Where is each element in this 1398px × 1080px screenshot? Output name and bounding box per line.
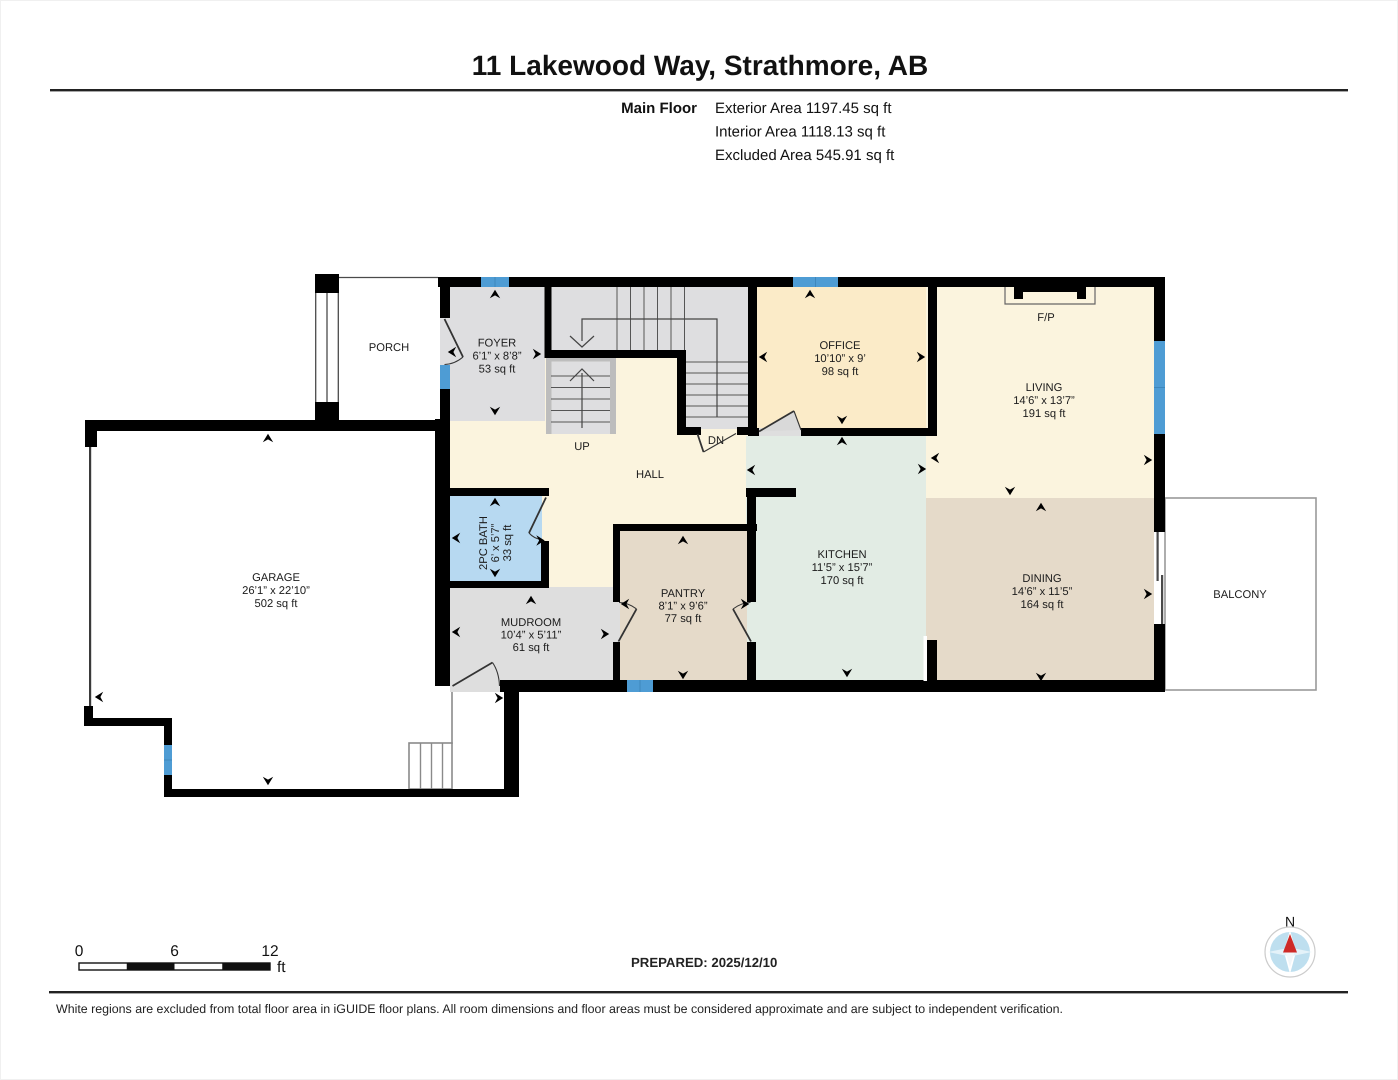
svg-text:11’5” x 15’7”: 11’5” x 15’7” xyxy=(812,562,873,574)
svg-text:164 sq ft: 164 sq ft xyxy=(1021,599,1065,611)
svg-text:10’10” x 9’: 10’10” x 9’ xyxy=(814,353,866,365)
svg-text:N: N xyxy=(1285,914,1295,930)
svg-text:LIVING: LIVING xyxy=(1026,382,1063,394)
svg-text:Exterior Area 1197.45 sq ft: Exterior Area 1197.45 sq ft xyxy=(715,100,892,117)
svg-text:HALL: HALL xyxy=(636,469,664,481)
svg-text:502 sq ft: 502 sq ft xyxy=(255,598,299,610)
svg-text:98 sq ft: 98 sq ft xyxy=(822,366,860,378)
svg-text:6’ x 5’7”: 6’ x 5’7” xyxy=(490,523,502,562)
svg-text:10’4” x 5’11”: 10’4” x 5’11” xyxy=(501,630,562,642)
svg-text:26’1” x 22’10”: 26’1” x 22’10” xyxy=(242,585,310,597)
svg-text:61 sq ft: 61 sq ft xyxy=(513,642,551,654)
svg-text:KITCHEN: KITCHEN xyxy=(817,549,866,561)
svg-text:0: 0 xyxy=(75,943,84,960)
svg-text:12: 12 xyxy=(261,943,278,960)
svg-text:77 sq ft: 77 sq ft xyxy=(665,613,703,625)
svg-text:Interior Area 1118.13 sq ft: Interior Area 1118.13 sq ft xyxy=(715,124,886,141)
svg-text:PORCH: PORCH xyxy=(369,342,409,354)
svg-text:191 sq ft: 191 sq ft xyxy=(1023,408,1067,420)
svg-text:Main Floor: Main Floor xyxy=(621,100,697,117)
svg-text:11 Lakewood Way, Strathmore, A: 11 Lakewood Way, Strathmore, AB xyxy=(472,50,928,81)
svg-text:OFFICE: OFFICE xyxy=(819,340,860,352)
svg-text:MUDROOM: MUDROOM xyxy=(501,617,561,629)
svg-text:FOYER: FOYER xyxy=(478,338,517,350)
svg-text:33 sq ft: 33 sq ft xyxy=(502,524,514,562)
svg-text:2PC BATH: 2PC BATH xyxy=(478,516,490,570)
svg-text:PREPARED: 2025/12/10: PREPARED: 2025/12/10 xyxy=(631,955,777,970)
svg-text:UP: UP xyxy=(574,441,590,453)
svg-text:ft: ft xyxy=(277,959,286,976)
svg-text:PANTRY: PANTRY xyxy=(661,588,706,600)
svg-text:GARAGE: GARAGE xyxy=(252,572,300,584)
svg-text:White regions are excluded fro: White regions are excluded from total fl… xyxy=(56,1002,1063,1016)
svg-text:6: 6 xyxy=(170,943,179,960)
svg-text:14’6” x 11’5”: 14’6” x 11’5” xyxy=(1012,586,1073,598)
svg-text:53 sq ft: 53 sq ft xyxy=(479,364,517,376)
svg-text:170 sq ft: 170 sq ft xyxy=(821,575,865,587)
svg-text:6’1” x 8’8”: 6’1” x 8’8” xyxy=(472,351,521,363)
svg-text:BALCONY: BALCONY xyxy=(1213,589,1267,601)
svg-text:Excluded Area 545.91 sq ft: Excluded Area 545.91 sq ft xyxy=(715,147,895,164)
svg-text:DINING: DINING xyxy=(1022,573,1061,585)
svg-text:F/P: F/P xyxy=(1037,312,1054,324)
svg-text:14’6” x 13’7”: 14’6” x 13’7” xyxy=(1013,395,1075,407)
svg-text:8’1” x 9’6”: 8’1” x 9’6” xyxy=(658,601,707,613)
